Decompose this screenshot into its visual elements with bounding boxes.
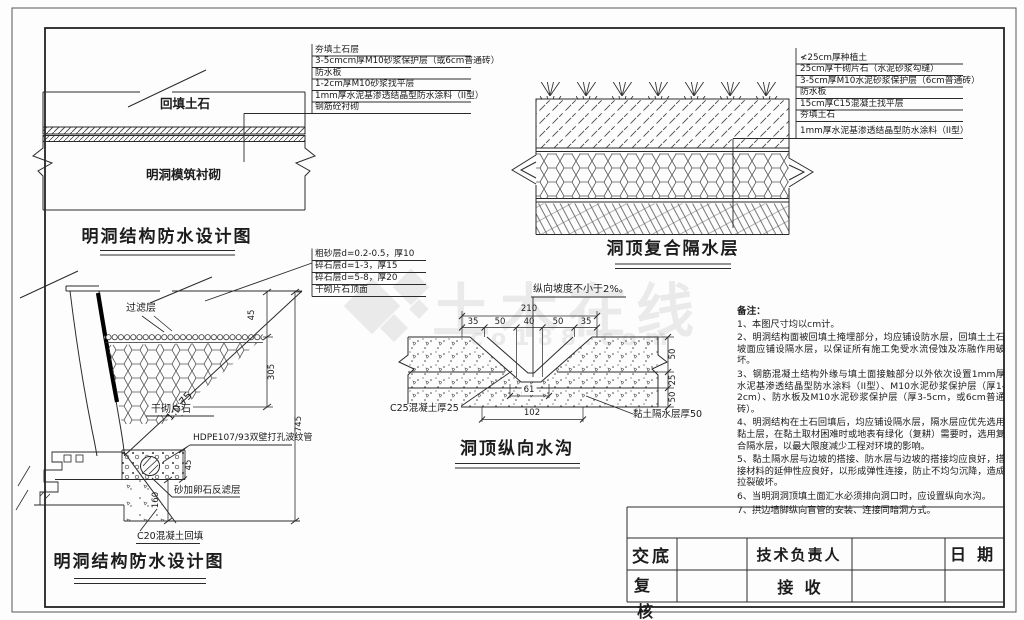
layer-stack-label: 碎石层d=1-3，厚15 — [315, 262, 398, 272]
d2-callout: 1mm厚水泥基渗透结晶型防水涂料（II型） — [800, 127, 969, 137]
titleblock-jiaodi: 交底 — [632, 542, 672, 567]
layer-stack-label: 碎石层d=5-8，厚20 — [315, 274, 398, 284]
d3-pipe-label: HDPE107/93双壁打孔波纹管 — [193, 434, 312, 444]
d2-callout: 夯填土石 — [800, 111, 835, 121]
d2-callout: 25cm厚干砌片石（水泥砂浆勾缝） — [800, 65, 939, 75]
titleblock-fu: 复 — [634, 572, 650, 596]
d4-clay-label: 黏土隔水层厚50 — [633, 410, 702, 420]
drawing-sheet: 土木在线 co188.com 回填土石 明洞模筑衬砌 明洞结构防水设计图 夯填土… — [0, 0, 1024, 620]
note-item: 1、本图尺寸均以cm计。 — [737, 319, 1005, 331]
d1-lining-label: 明洞模筑衬砌 — [146, 168, 221, 182]
d4-dim-61: 61 — [522, 386, 537, 395]
d4-dim-top: 35 — [468, 318, 479, 327]
d3-c20-label: C20混凝土回填 — [137, 532, 203, 542]
d3-dim-305: 305 — [267, 364, 277, 380]
d3-dim-45-top: 45 — [247, 310, 257, 321]
d4-dim-top: 50 — [495, 318, 506, 327]
d4-dim-102: 102 — [524, 409, 540, 418]
d1-callout: 1mm厚水泥基渗透结晶型防水涂料（II型） — [315, 92, 484, 102]
note-item: 5、黏土隔水层与边坡的搭接、防水层与边坡的搭接均应良好，搭接材料的延伸性应良好，… — [737, 454, 1005, 489]
d2-callout: 防水板 — [800, 88, 826, 98]
d4-dim-right: 50 — [668, 392, 678, 403]
titleblock-tech: 技术负责人 — [756, 544, 841, 565]
d1-callout: 1-2cm厚M10砂浆找平层 — [315, 80, 414, 90]
d4-dim-top: 50 — [553, 318, 564, 327]
note-item: 6、当明洞洞顶填土面汇水必须排向洞口时，应设置纵向水沟。 — [737, 491, 1005, 503]
note-item: 7、拱边墙脚纵向盲管的安装、连接同暗洞方式。 — [737, 505, 1005, 517]
d4-c25-label: C25混凝土厚25 — [388, 404, 461, 414]
d2-callout: 3-5cm厚M10水泥砂浆保护层（6cm普通砖） — [800, 77, 980, 87]
d3-dim-45-small: 45 — [184, 460, 194, 471]
d4-dim-right: 25 — [668, 375, 678, 386]
d3-filter-label: 过滤层 — [126, 303, 156, 314]
d4-dim-top: 35 — [581, 318, 592, 327]
d1-callout: 3-5cmcm厚M10砂浆保护层（或6cm普通砖） — [315, 57, 500, 67]
notes-heading: 备注： — [737, 306, 1005, 318]
titleblock-he: 核 — [637, 598, 653, 620]
titleblock-jieshou: 接 收 — [777, 574, 820, 598]
note-item: 3、钢筋混凝土结构外缘与填土面接触部分以外依次设置1mm厚水泥基渗透结晶型防水涂… — [737, 369, 1005, 415]
d3-title: 明洞结构防水设计图 — [54, 553, 225, 572]
layer-stack-label: 干砌片石顶面 — [315, 286, 368, 296]
d4-dim-top: 40 — [524, 318, 535, 327]
d1-title: 明洞结构防水设计图 — [82, 228, 253, 247]
d2-title: 洞顶复合隔水层 — [607, 240, 740, 259]
d1-backfill-label: 回填土石 — [160, 97, 210, 111]
d1-callout: 钢筋砼衬砌 — [315, 103, 359, 113]
d4-dim-right: 50 — [668, 349, 678, 360]
layer-stack-label: 粗砂层d=0.2-0.5，厚10 — [315, 250, 414, 260]
titleblock-date: 日 期 — [950, 541, 993, 565]
d3-dim-745: 745 — [294, 416, 304, 432]
d2-callout: ≮25cm厚种植土 — [800, 54, 867, 64]
d3-dim-160: 160 — [151, 492, 161, 508]
d3-sand-label: 砂加卵石反滤层 — [174, 486, 241, 496]
d4-dim-total: 210 — [521, 305, 537, 314]
d1-callout: 夯填土石层 — [315, 46, 359, 56]
d4-slope-note: 纵向坡度不小于2%。 — [533, 284, 629, 295]
note-item: 2、明洞结构面被回填土掩埋部分，均应铺设防水层，回填土土石坡面应铺设隔水层，以保… — [737, 332, 1005, 367]
d2-callout: 15cm厚C15混凝土找平层 — [800, 100, 904, 110]
note-item: 4、明洞结构在土石回填后，均应铺设隔水层，隔水层应优先选用黏土层，在黏土取材困难… — [737, 417, 1005, 452]
d1-callout: 防水板 — [315, 69, 341, 79]
d4-title: 洞顶纵向水沟 — [460, 440, 574, 459]
notes-block: 备注： 1、本图尺寸均以cm计。 2、明洞结构面被回填土掩埋部分，均应铺设防水层… — [737, 306, 1005, 518]
